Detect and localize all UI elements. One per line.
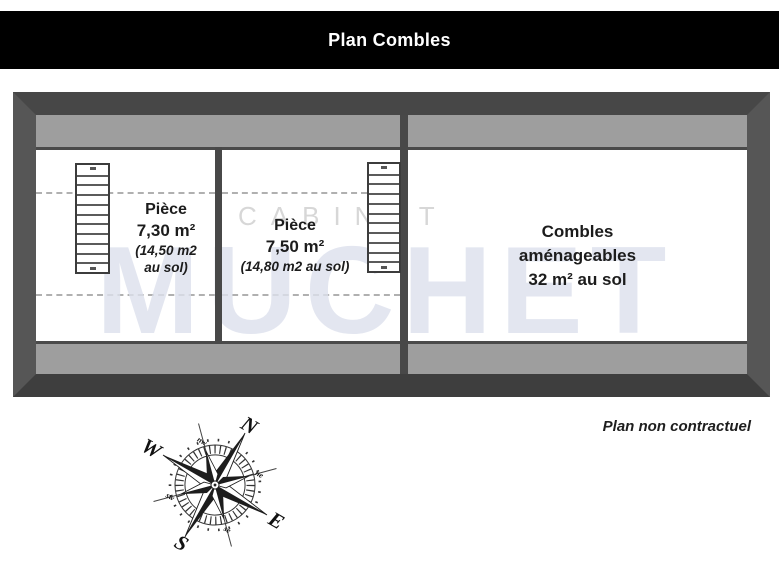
disclaimer-text: Plan non contractuel — [603, 418, 751, 435]
compass-west-label: W — [137, 433, 166, 464]
compass-rose-icon: N E S W nw ne se sw — [130, 412, 300, 562]
interior-wall-bottom — [36, 341, 747, 344]
height-limit-dashed-line — [36, 294, 215, 296]
room3-name-line2: aménageables — [408, 244, 747, 268]
height-limit-dashed-line — [36, 192, 215, 194]
floor-plan-inner: CABINET MUCHET Pièce 7,30 m² (14,50 m2 a… — [36, 115, 747, 374]
height-limit-dashed-line — [222, 294, 400, 296]
partition-wall-room2-room3 — [400, 115, 408, 374]
compass-southwest-label: sw — [163, 490, 176, 503]
floor-plan-page: Plan Combles CABINET MUCHET Pièce 7,30 m… — [0, 0, 779, 586]
title-bar: Plan Combles — [0, 11, 779, 69]
room2-floor-note: (14,80 m2 au sol) — [222, 258, 368, 275]
page-title: Plan Combles — [328, 30, 451, 51]
roof-slope-band-top-left — [36, 115, 400, 147]
roof-slope-band-bottom-left — [36, 344, 400, 374]
compass-east-label: E — [264, 506, 289, 534]
room1-floor-note-line1: (14,50 m2 — [110, 242, 222, 259]
compass-south-label: S — [170, 530, 192, 557]
staircase-room2 — [367, 162, 401, 273]
roof-slope-band-bottom-right — [408, 344, 747, 374]
compass-north-label: N — [236, 412, 263, 440]
room3-name-line1: Combles — [408, 220, 747, 244]
height-limit-dashed-line — [222, 192, 367, 194]
room3-area: 32 m² au sol — [408, 268, 747, 292]
room3-label: Combles aménageables 32 m² au sol — [408, 220, 747, 292]
room2-area: 7,50 m² — [222, 236, 368, 258]
floor-plan: CABINET MUCHET Pièce 7,30 m² (14,50 m2 a… — [13, 92, 770, 397]
room2-label: Pièce 7,50 m² (14,80 m2 au sol) — [222, 215, 368, 275]
room2-name: Pièce — [222, 215, 368, 236]
interior-wall-top — [36, 147, 747, 150]
staircase-room1 — [75, 163, 110, 274]
room1-label: Pièce 7,30 m² (14,50 m2 au sol) — [110, 199, 222, 276]
compass-southeast-label: se — [221, 524, 233, 536]
room1-floor-note-line2: au sol) — [110, 259, 222, 276]
room1-area: 7,30 m² — [110, 220, 222, 242]
roof-slope-band-top-right — [408, 115, 747, 147]
compass-northeast-label: ne — [254, 468, 266, 480]
room1-name: Pièce — [110, 199, 222, 220]
